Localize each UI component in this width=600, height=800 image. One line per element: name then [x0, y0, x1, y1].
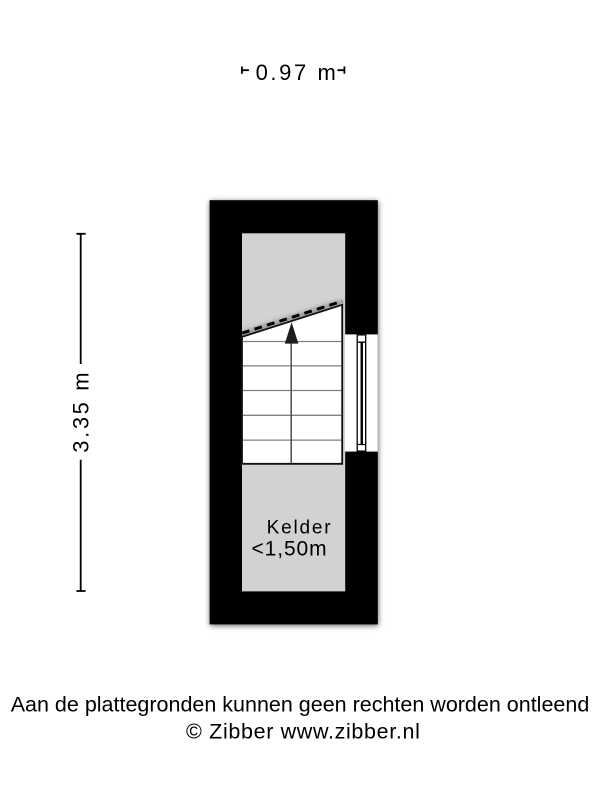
svg-text:Aan de plattegronden kunnen ge: Aan de plattegronden kunnen geen rechten…	[11, 693, 590, 717]
svg-text:<1,50m: <1,50m	[251, 538, 327, 561]
svg-text:0.97 m: 0.97 m	[256, 60, 339, 85]
svg-text:3.35 m: 3.35 m	[69, 370, 94, 453]
svg-text:Kelder: Kelder	[267, 518, 333, 539]
svg-text:© Zibber www.zibber.nl: © Zibber www.zibber.nl	[186, 720, 420, 744]
